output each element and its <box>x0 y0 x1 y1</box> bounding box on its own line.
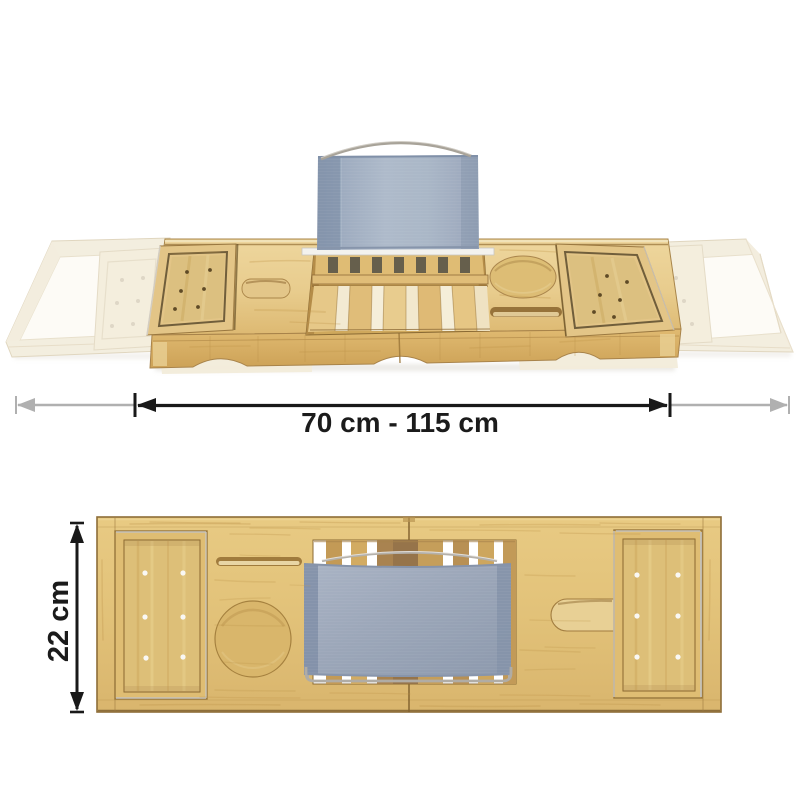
svg-text:70 cm - 115 cm: 70 cm - 115 cm <box>301 407 499 438</box>
svg-text:22 cm: 22 cm <box>43 580 75 662</box>
